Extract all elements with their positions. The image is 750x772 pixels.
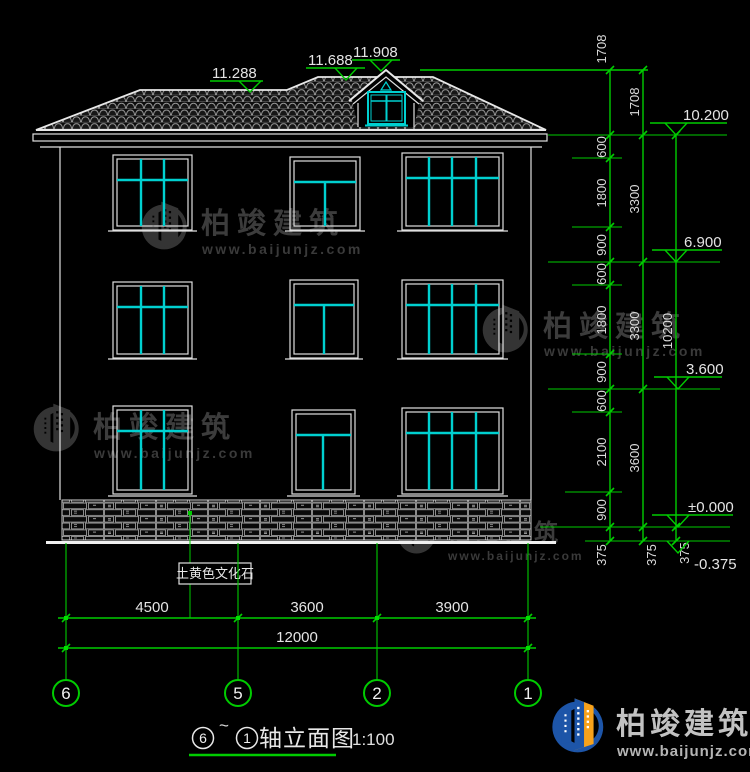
right-inner-dim-labels: 1708 600 1800 900 600 1800 900 600 2100 … bbox=[594, 35, 609, 566]
ridge-upper-elevation: 11.688 bbox=[308, 52, 353, 69]
window-row1-middle bbox=[287, 410, 360, 496]
level2-label: 3.600 bbox=[686, 361, 724, 378]
window-row1-right bbox=[397, 408, 508, 496]
svg-text:1708: 1708 bbox=[627, 88, 642, 117]
axis-bubble-6: 6 bbox=[61, 684, 70, 703]
title-tilde: ~ bbox=[219, 716, 229, 735]
watermark-logo-icon bbox=[483, 305, 528, 353]
svg-text:3300: 3300 bbox=[627, 312, 642, 341]
axis-bubble-1: 1 bbox=[523, 684, 532, 703]
watermark-url: www.baijunjz.com bbox=[201, 241, 363, 257]
svg-text:600: 600 bbox=[594, 390, 609, 412]
window-row3-right bbox=[397, 153, 508, 231]
footer-logo: 柏竣建筑 www.baijunjz.com bbox=[552, 698, 750, 760]
svg-text:600: 600 bbox=[594, 263, 609, 285]
ridge-dormer-elevation: 11.908 bbox=[353, 44, 398, 61]
drawing-title: 6 ~ 1 轴立面图 1:100 bbox=[189, 716, 395, 755]
title-axis-from: 6 bbox=[199, 730, 207, 746]
axis-bubble-2: 2 bbox=[372, 684, 381, 703]
watermark-name: 柏竣建筑 bbox=[201, 206, 345, 240]
roof bbox=[36, 77, 546, 130]
drawing-canvas: 柏竣建筑 www.baijunjz.com 柏竣建筑 www.baijunjz.… bbox=[0, 0, 750, 772]
svg-text:375: 375 bbox=[644, 544, 659, 566]
bottom-dim-total: 12000 bbox=[276, 629, 318, 646]
right-total-dim: 10200 bbox=[660, 313, 675, 349]
company-logo-icon bbox=[552, 698, 603, 752]
svg-text:3600: 3600 bbox=[627, 444, 642, 473]
svg-text:900: 900 bbox=[594, 361, 609, 383]
cad-elevation-drawing: 柏竣建筑 www.baijunjz.com 柏竣建筑 www.baijunjz.… bbox=[0, 0, 750, 772]
stone-base bbox=[62, 500, 531, 540]
title-axis-to: 1 bbox=[243, 730, 251, 746]
svg-text:2100: 2100 bbox=[594, 438, 609, 467]
site-level-label: -0.375 bbox=[694, 556, 737, 573]
svg-text:600: 600 bbox=[594, 136, 609, 158]
watermark-logo-icon bbox=[34, 404, 79, 452]
company-name: 柏竣建筑 bbox=[616, 707, 750, 741]
svg-text:1800: 1800 bbox=[594, 179, 609, 208]
svg-text:900: 900 bbox=[594, 234, 609, 256]
eave-level-label: 10.200 bbox=[683, 107, 729, 124]
svg-text:900: 900 bbox=[594, 499, 609, 521]
watermark-3: 柏竣建筑 www.baijunjz.com bbox=[34, 404, 255, 461]
company-url: www.baijunjz.com bbox=[616, 743, 750, 760]
svg-text:1708: 1708 bbox=[594, 35, 609, 64]
svg-text:1800: 1800 bbox=[594, 306, 609, 335]
axis-bubble-5: 5 bbox=[233, 684, 242, 703]
axis-bubbles: 6 5 2 1 bbox=[53, 680, 541, 706]
watermark-url: www.baijunjz.com bbox=[447, 549, 584, 563]
stone-label: 土黄色文化石 bbox=[176, 566, 254, 581]
watermark-url: www.baijunjz.com bbox=[543, 343, 705, 359]
level3-label: 6.900 bbox=[684, 234, 722, 251]
title-scale: 1:100 bbox=[352, 730, 395, 749]
house-elevation bbox=[33, 70, 556, 543]
title-text: 轴立面图 bbox=[259, 725, 355, 751]
ground-level-label: ±0.000 bbox=[688, 499, 734, 516]
bottom-dim-2: 3600 bbox=[290, 599, 323, 616]
ridge-main-elevation: 11.288 bbox=[212, 65, 257, 82]
eave-fascia bbox=[33, 130, 547, 147]
window-row2-left bbox=[108, 282, 197, 359]
bottom-dim-1: 4500 bbox=[135, 599, 168, 616]
svg-text:375: 375 bbox=[594, 544, 609, 566]
watermark-1: 柏竣建筑 www.baijunjz.com bbox=[142, 202, 363, 257]
svg-text:3300: 3300 bbox=[627, 185, 642, 214]
bottom-dim-3: 3900 bbox=[435, 599, 468, 616]
window-row2-middle bbox=[285, 280, 363, 359]
